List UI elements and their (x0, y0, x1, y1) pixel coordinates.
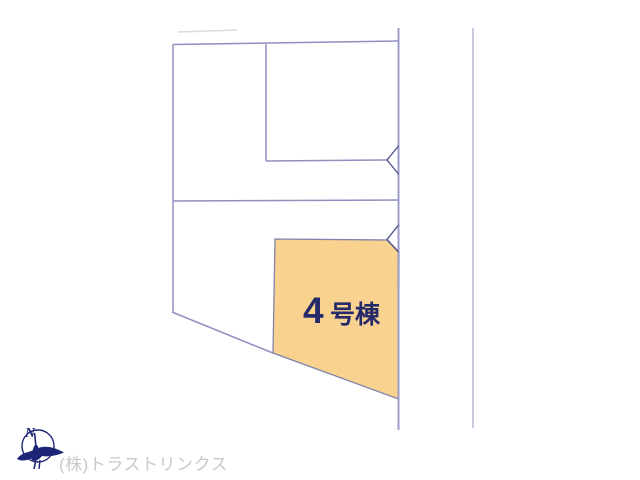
faint-boundary-fragment (178, 30, 237, 32)
compass-north-icon: N (17, 426, 64, 469)
parcel-4-label-number: 4 (303, 290, 324, 331)
entrance-chevron-icon-upper (387, 146, 399, 174)
lower-left-diagonal-boundary (172, 312, 274, 354)
middle-divider-boundary (173, 200, 398, 201)
company-watermark: (株)トラストリンクス (59, 450, 228, 475)
compass-tail-stroke-2 (39, 460, 40, 469)
site-plan-drawing: 4 号棟 N (0, 0, 640, 480)
parcel-4-label-suffix: 号棟 (330, 301, 381, 329)
top-boundary-line (173, 41, 398, 45)
site-plan-page: 4 号棟 N (株)トラストリンクス (0, 0, 640, 480)
interior-horizontal-boundary (266, 160, 387, 161)
